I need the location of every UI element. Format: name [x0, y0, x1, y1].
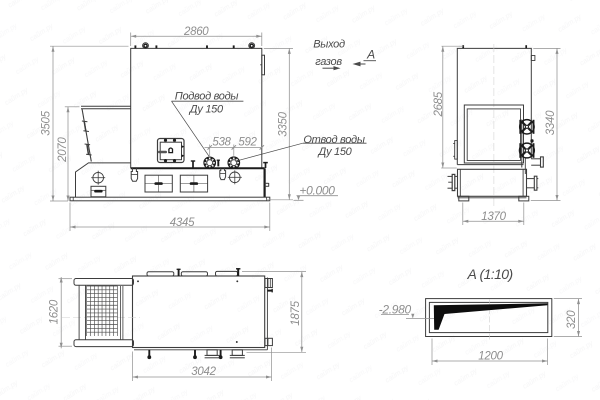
- svg-text:Ду 150: Ду 150: [188, 103, 224, 115]
- svg-text:1200: 1200: [478, 351, 503, 363]
- svg-text:Выход: Выход: [313, 39, 345, 51]
- svg-text:2070: 2070: [57, 137, 69, 163]
- svg-text:+0.000: +0.000: [299, 184, 335, 198]
- svg-text:592: 592: [238, 137, 257, 149]
- svg-text:1370: 1370: [481, 211, 506, 223]
- svg-text:2685: 2685: [433, 91, 445, 117]
- svg-text:3350: 3350: [277, 111, 289, 136]
- svg-text:А: А: [366, 48, 375, 62]
- svg-text:Ду 150: Ду 150: [317, 146, 353, 158]
- svg-text:320: 320: [566, 310, 578, 329]
- svg-text:Отвод воды: Отвод воды: [303, 134, 364, 146]
- svg-text:1875: 1875: [290, 300, 302, 325]
- svg-text:А (1:10): А (1:10): [467, 266, 513, 282]
- svg-text:газов: газов: [315, 56, 342, 68]
- svg-text:538: 538: [212, 137, 231, 149]
- svg-text:3340: 3340: [545, 110, 557, 135]
- svg-text:1620: 1620: [49, 299, 61, 324]
- svg-text:2860: 2860: [183, 26, 209, 38]
- svg-text:3042: 3042: [191, 366, 216, 378]
- svg-text:3505: 3505: [41, 110, 53, 135]
- svg-text:4345: 4345: [170, 217, 195, 229]
